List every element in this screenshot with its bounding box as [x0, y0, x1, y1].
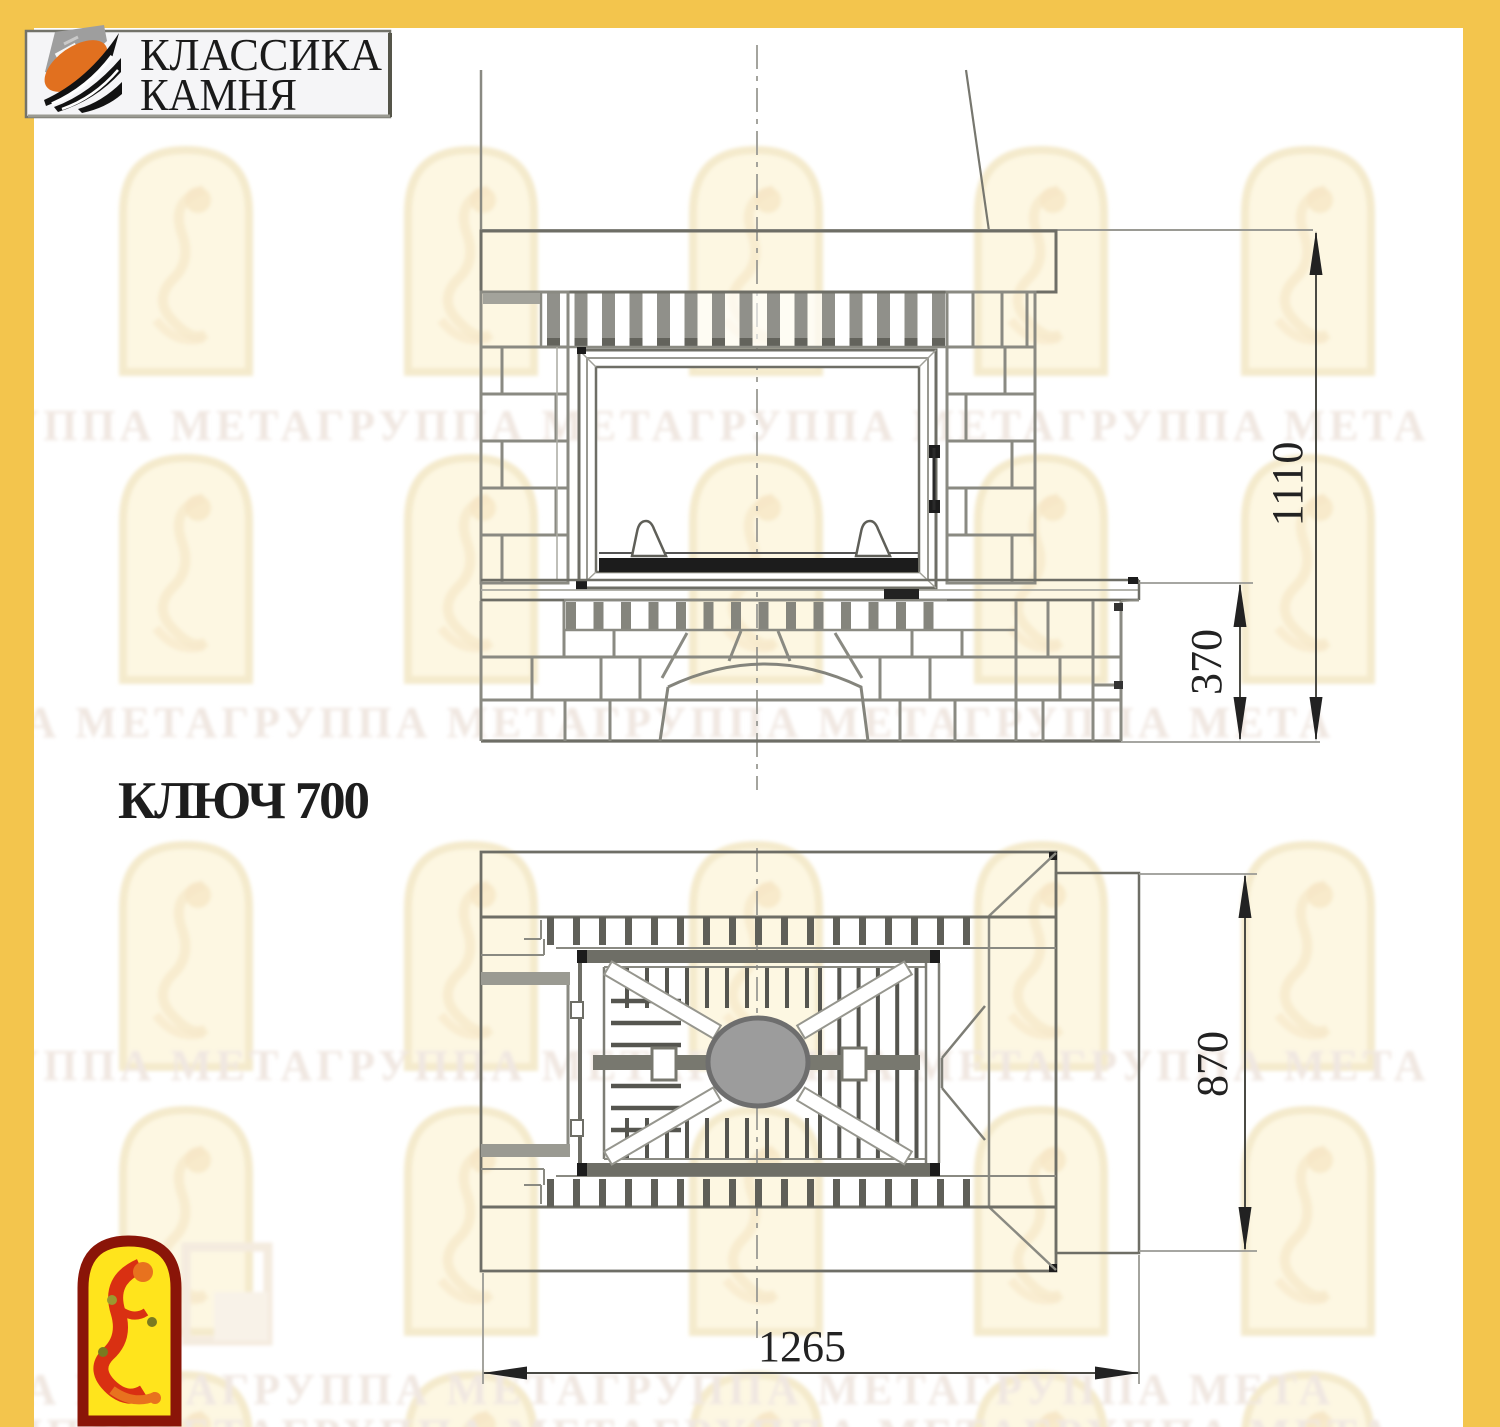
svg-text:КЛЮЧ 700: КЛЮЧ 700 — [118, 772, 370, 830]
svg-text:1265: 1265 — [758, 1322, 846, 1371]
svg-text:ГРУППА МЕТАГРУППА МЕТАГРУППА М: ГРУППА МЕТАГРУППА МЕТАГРУППА МЕТАГРУППА … — [0, 401, 1429, 450]
svg-text:1110: 1110 — [1263, 442, 1312, 527]
svg-text:КАМНЯ: КАМНЯ — [140, 69, 297, 120]
svg-text:ГРУППА МЕТАГРУППА МЕТАГРУППА М: ГРУППА МЕТАГРУППА МЕТАГРУППА МЕТАГРУППА … — [0, 1410, 1394, 1427]
svg-text:370: 370 — [1182, 629, 1231, 695]
svg-text:870: 870 — [1188, 1031, 1237, 1097]
